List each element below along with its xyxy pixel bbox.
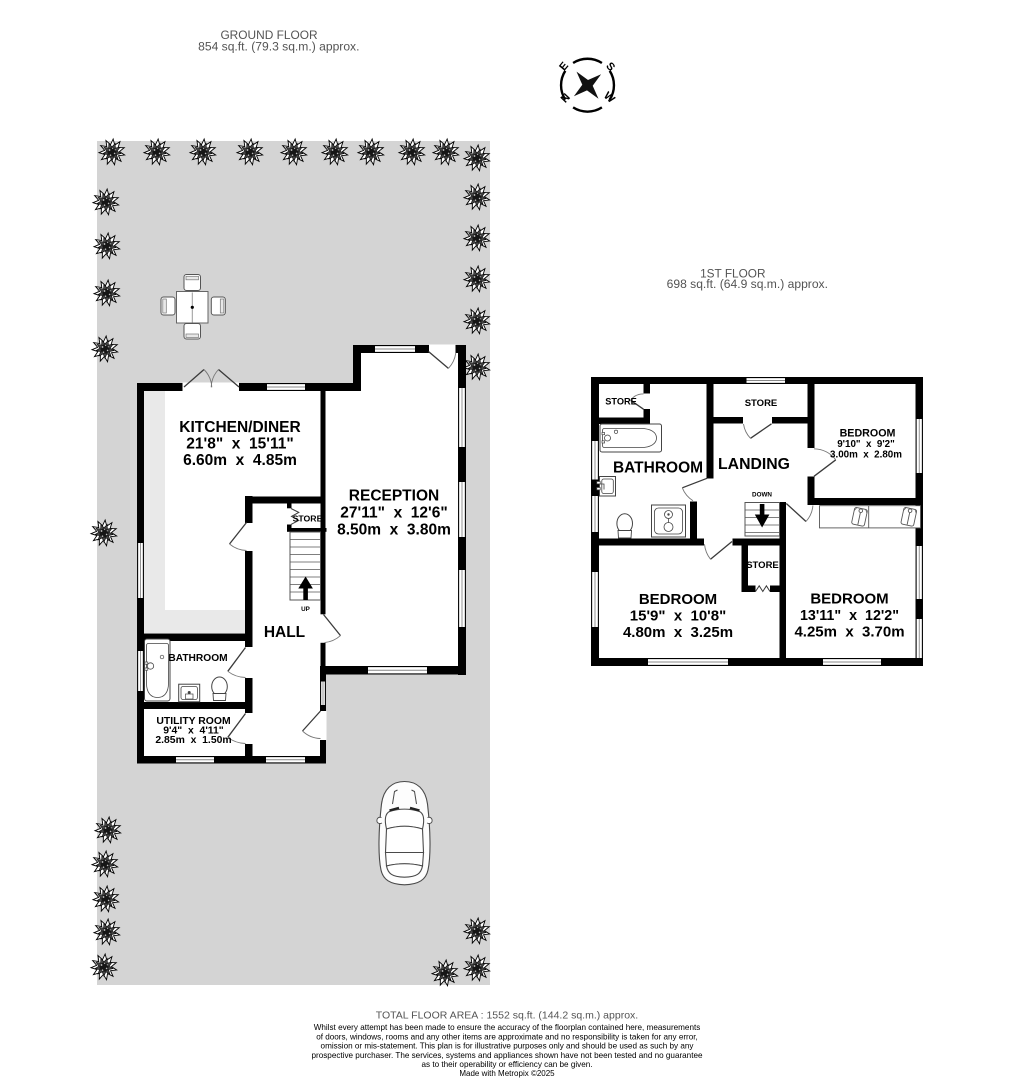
svg-text:STORE: STORE <box>293 514 323 524</box>
svg-text:omission or mis-statement. Thi: omission or mis-statement. This plan is … <box>321 1042 695 1051</box>
svg-text:TOTAL FLOOR AREA : 1552 sq.ft.: TOTAL FLOOR AREA : 1552 sq.ft. (144.2 sq… <box>376 1010 638 1022</box>
svg-text:prospective purchaser. The ser: prospective purchaser. The services, sys… <box>312 1051 703 1060</box>
svg-text:W: W <box>601 90 617 106</box>
svg-text:Whilst every attempt has been: Whilst every attempt has been made to en… <box>314 1023 701 1032</box>
svg-text:BATHROOM: BATHROOM <box>168 653 227 664</box>
svg-text:15'9" x 10'8": 15'9" x 10'8" <box>630 608 726 625</box>
svg-text:6.60m x 4.85m: 6.60m x 4.85m <box>183 452 297 469</box>
svg-text:2.85m x 1.50m: 2.85m x 1.50m <box>155 735 231 746</box>
svg-text:STORE: STORE <box>605 397 636 407</box>
svg-text:698 sq.ft. (64.9 sq.m.) approx: 698 sq.ft. (64.9 sq.m.) approx. <box>667 277 828 291</box>
svg-text:E: E <box>557 60 571 73</box>
svg-text:BEDROOM: BEDROOM <box>639 591 717 608</box>
svg-text:21'8" x 15'11": 21'8" x 15'11" <box>186 436 293 453</box>
svg-text:of doors, windows, rooms and a: of doors, windows, rooms and any other i… <box>316 1032 698 1041</box>
svg-text:STORE: STORE <box>745 398 778 409</box>
svg-text:3.00m x 2.80m: 3.00m x 2.80m <box>830 449 902 460</box>
svg-text:STORE: STORE <box>746 560 779 571</box>
svg-text:HALL: HALL <box>264 624 305 641</box>
svg-text:UP: UP <box>301 606 310 613</box>
svg-text:DOWN: DOWN <box>752 492 772 499</box>
svg-text:BEDROOM: BEDROOM <box>840 428 896 440</box>
svg-text:BATHROOM: BATHROOM <box>613 460 703 477</box>
svg-text:S: S <box>603 60 617 73</box>
svg-text:854 sq.ft. (79.3 sq.m.) approx: 854 sq.ft. (79.3 sq.m.) approx. <box>198 39 359 53</box>
svg-text:N: N <box>559 91 573 105</box>
svg-text:4.25m x 3.70m: 4.25m x 3.70m <box>794 624 904 641</box>
svg-text:4.80m x 3.25m: 4.80m x 3.25m <box>623 624 733 641</box>
svg-text:13'11" x 12'2": 13'11" x 12'2" <box>800 608 899 624</box>
svg-text:BEDROOM: BEDROOM <box>810 591 888 608</box>
svg-text:27'11" x 12'6": 27'11" x 12'6" <box>340 505 447 522</box>
svg-text:KITCHEN/DINER: KITCHEN/DINER <box>179 419 300 436</box>
svg-text:8.50m x 3.80m: 8.50m x 3.80m <box>337 522 451 539</box>
svg-text:RECEPTION: RECEPTION <box>349 488 439 505</box>
svg-text:LANDING: LANDING <box>718 456 790 473</box>
svg-text:Made with Metropix ©2025: Made with Metropix ©2025 <box>459 1069 555 1078</box>
